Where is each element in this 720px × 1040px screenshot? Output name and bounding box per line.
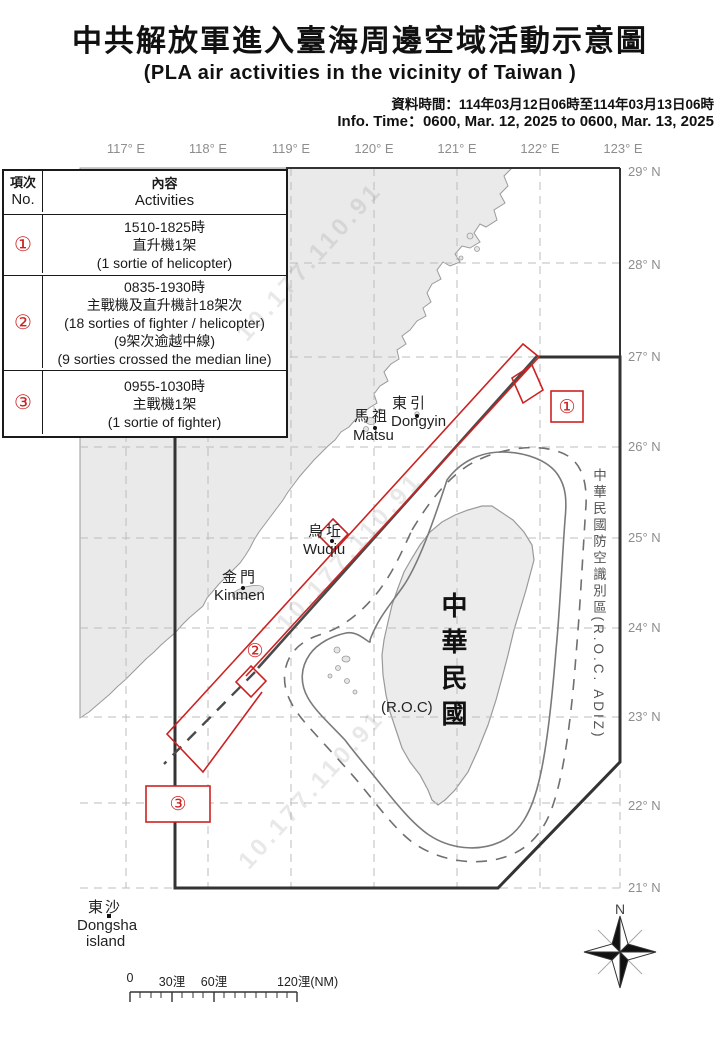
roc-label: (R.O.C) — [381, 699, 433, 716]
activities-table: 項次 No. 內容 Activities ① 1510-1825時 直升機1架 … — [2, 169, 288, 438]
row1-number-cell: ① — [4, 215, 43, 273]
row2-line1: 0835-1930時 — [124, 278, 205, 296]
table-row-1: ① 1510-1825時 直升機1架 (1 sortie of helicopt… — [4, 214, 286, 275]
table-header-activities: 內容 Activities — [43, 171, 286, 214]
row2-activity-cell: 0835-1930時 主戰機及直升機計18架次 (18 sorties of f… — [43, 276, 286, 370]
row2-number-cell: ② — [4, 276, 43, 368]
place-kinmen-zh: 金門 — [222, 566, 258, 587]
row1-line3: (1 sortie of helicopter) — [97, 254, 232, 272]
place-kinmen-en: Kinmen — [214, 587, 265, 604]
row1-line1: 1510-1825時 — [124, 218, 205, 236]
header-no-zh: 項次 — [10, 174, 36, 191]
table-header-row: 項次 No. 內容 Activities — [4, 171, 286, 214]
row2-line4: (9架次逾越中線) — [114, 332, 215, 350]
row3-activity-cell: 0955-1030時 主戰機1架 (1 sortie of fighter) — [43, 371, 286, 436]
compass-north-label: N — [615, 901, 625, 917]
row3-number-cell: ③ — [4, 371, 43, 434]
compass-rose-icon — [584, 916, 656, 988]
row3-line3: (1 sortie of fighter) — [108, 413, 222, 431]
taiwan-label-vertical: 中華民國 — [434, 592, 471, 736]
row2-line5: (9 sorties crossed the median line) — [58, 350, 272, 368]
row1-circled-number: ① — [14, 232, 32, 257]
table-row-2: ② 0835-1930時 主戰機及直升機計18架次 (18 sorties of… — [4, 275, 286, 370]
row2-line3: (18 sorties of fighter / helicopter) — [64, 314, 265, 332]
place-dongsha-en1: Dongsha — [77, 917, 137, 934]
header-act-en: Activities — [135, 192, 194, 210]
place-matsu-en: Matsu — [353, 427, 394, 444]
header-no-en: No. — [11, 191, 34, 209]
place-matsu-zh: 馬祖 — [354, 405, 390, 426]
place-dongyin-en: Dongyin — [391, 413, 446, 430]
row1-activity-cell: 1510-1825時 直升機1架 (1 sortie of helicopter… — [43, 215, 286, 275]
row1-line2: 直升機1架 — [133, 236, 197, 254]
place-dongsha-en2: island — [86, 933, 125, 950]
place-wuqiu-zh: 烏坵 — [308, 520, 344, 541]
place-wuqiu-en: Wuqiu — [303, 541, 345, 558]
marker-2-label: ② — [246, 642, 264, 661]
place-dongyin-zh: 東引 — [392, 392, 428, 413]
marker-3-label: ③ — [169, 795, 187, 814]
adiz-label-vertical: 中華民國防空識別區(R.O.C. ADIZ) — [588, 468, 608, 740]
row3-circled-number: ③ — [14, 390, 32, 415]
row3-line2: 主戰機1架 — [133, 395, 197, 413]
marker-1-label: ① — [558, 398, 576, 417]
place-dongsha-zh: 東沙 — [88, 896, 122, 917]
table-header-no: 項次 No. — [4, 171, 43, 212]
header-act-zh: 內容 — [151, 175, 177, 192]
table-row-3: ③ 0955-1030時 主戰機1架 (1 sortie of fighter) — [4, 370, 286, 436]
map-canvas — [0, 0, 720, 1040]
row2-circled-number: ② — [14, 310, 32, 335]
pla-activity-map-page: { "header": { "title_zh": "中共解放軍進入臺海周邊空域… — [0, 0, 720, 1040]
row2-line2: 主戰機及直升機計18架次 — [87, 296, 243, 314]
row3-line1: 0955-1030時 — [124, 377, 205, 395]
scale-bar — [130, 992, 297, 1002]
